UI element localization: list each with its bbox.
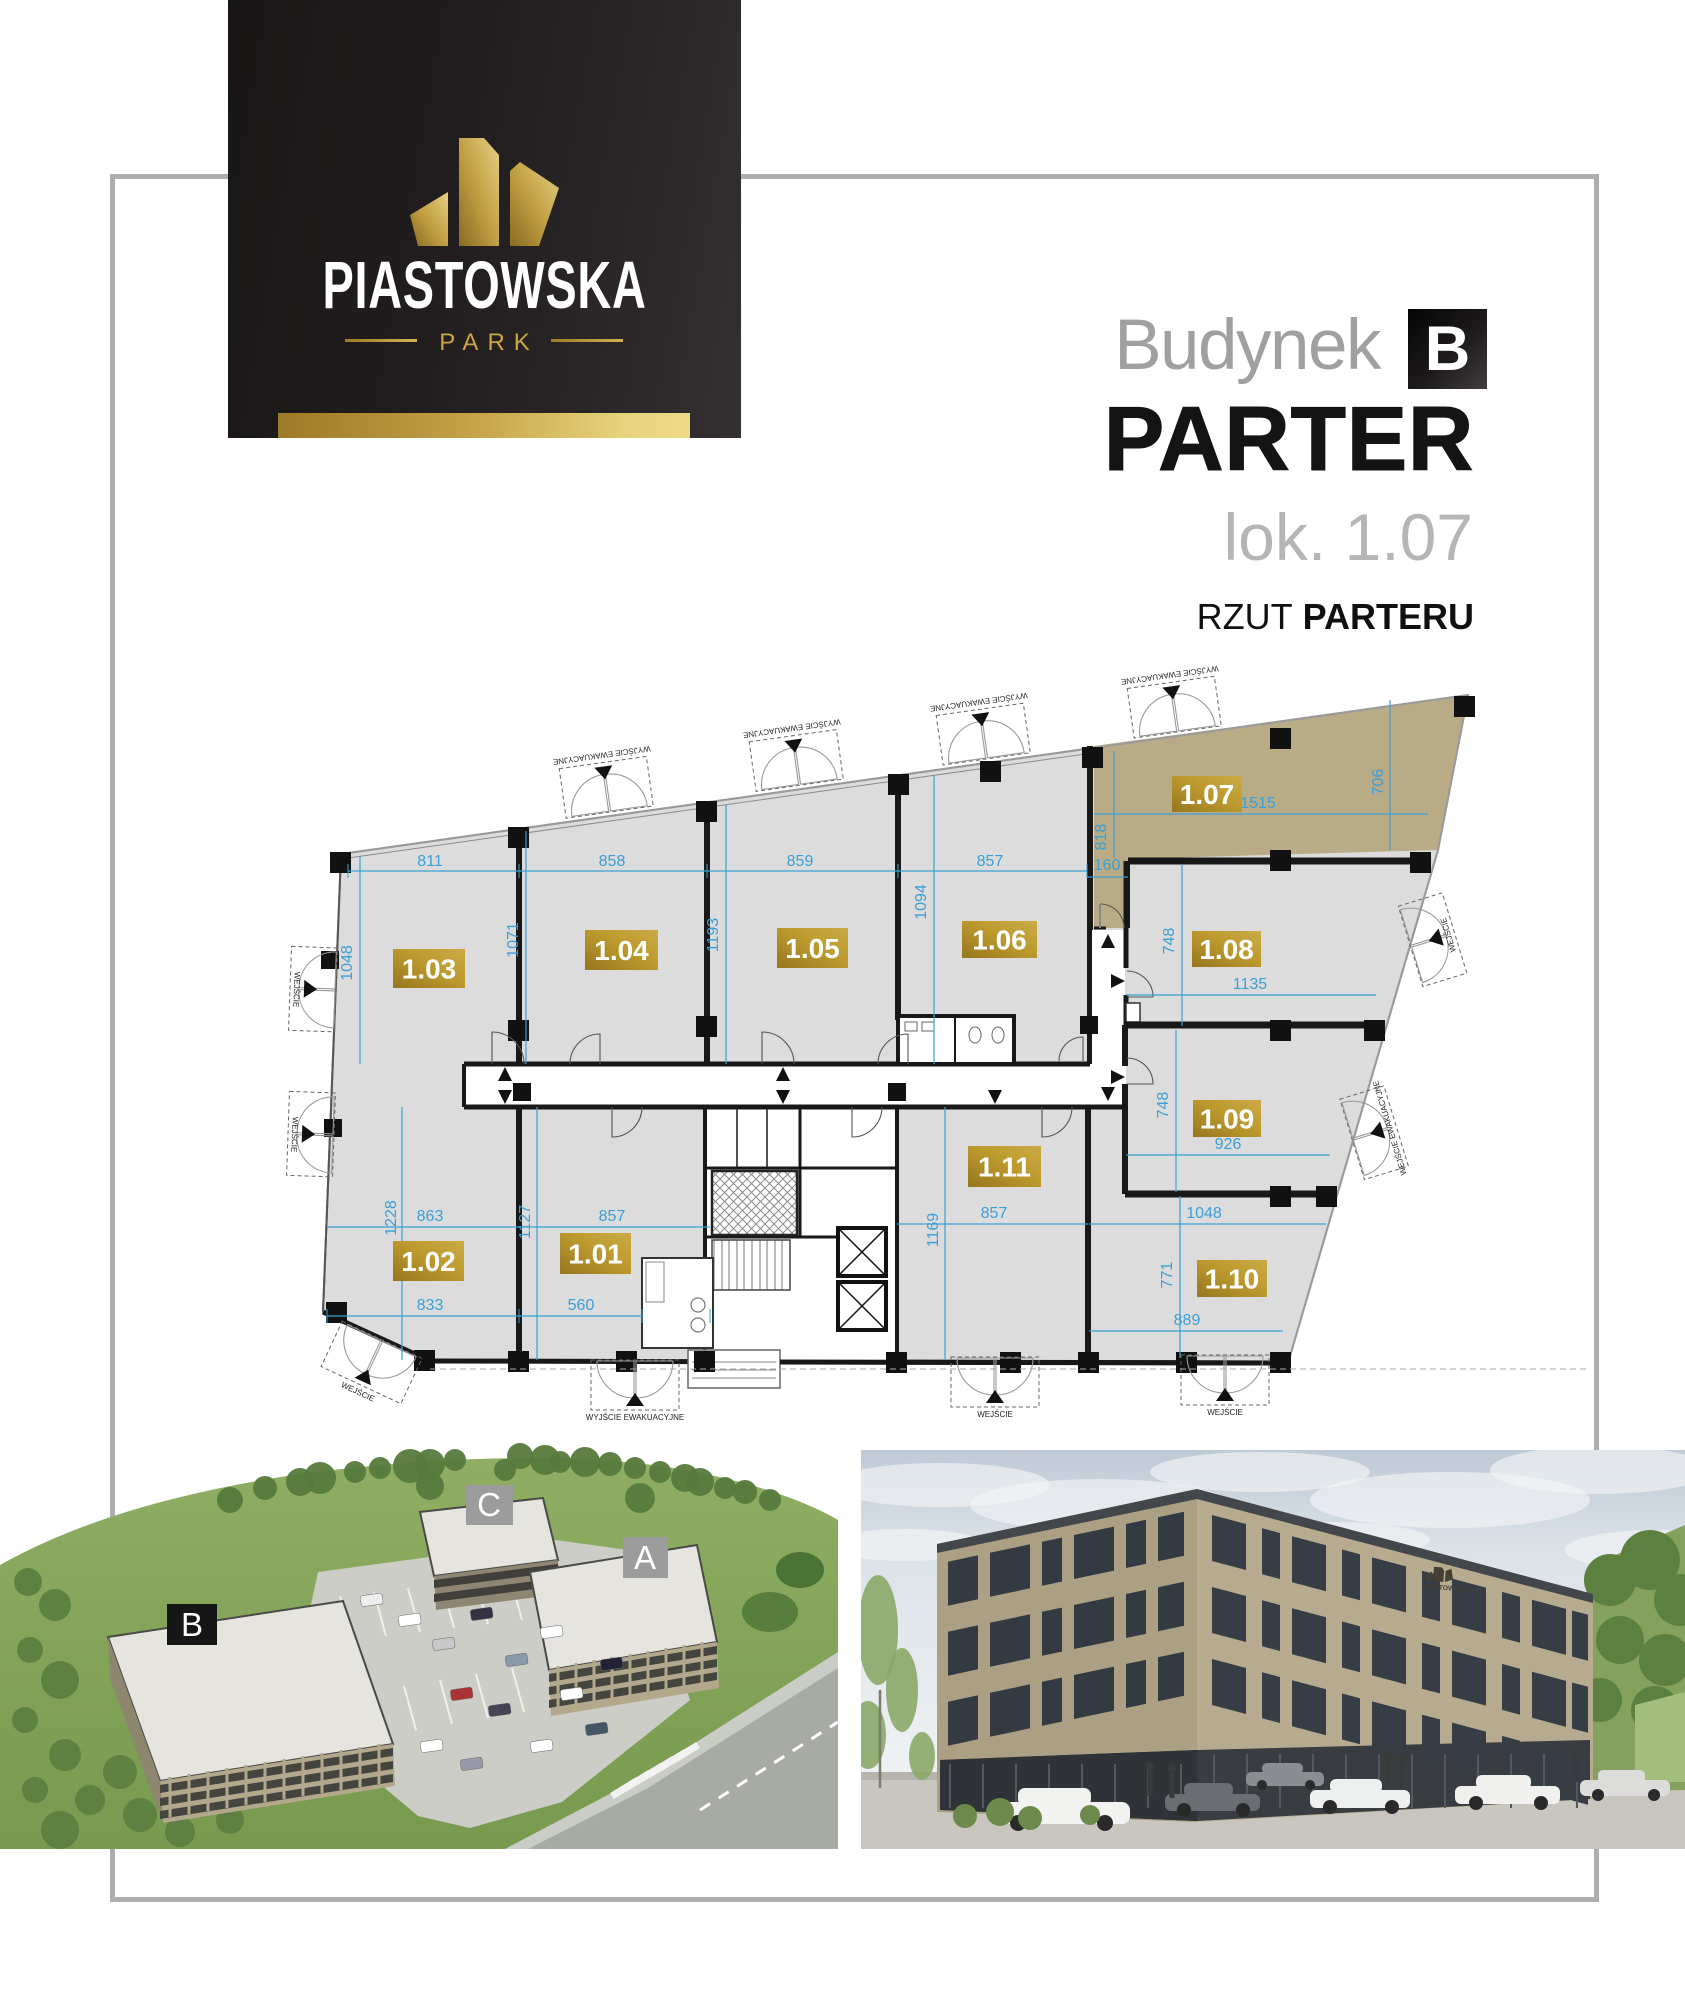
svg-text:859: 859 [787, 853, 814, 870]
svg-text:1094: 1094 [913, 884, 930, 920]
svg-text:858: 858 [599, 853, 626, 870]
svg-text:1.08: 1.08 [1199, 934, 1254, 965]
svg-text:1.07: 1.07 [1180, 779, 1235, 810]
svg-text:1.05: 1.05 [785, 933, 840, 964]
svg-text:857: 857 [599, 1208, 626, 1225]
svg-text:1071: 1071 [505, 922, 522, 958]
svg-text:748: 748 [1155, 1092, 1172, 1119]
svg-text:WEJŚCIE: WEJŚCIE [289, 1117, 299, 1153]
svg-text:857: 857 [981, 1205, 1008, 1222]
svg-text:160: 160 [1094, 857, 1121, 874]
svg-text:1.01: 1.01 [568, 1239, 623, 1270]
svg-text:1135: 1135 [1233, 976, 1268, 993]
svg-text:1169: 1169 [925, 1213, 942, 1248]
svg-text:1.02: 1.02 [401, 1246, 456, 1277]
svg-text:1.10: 1.10 [1205, 1264, 1260, 1295]
svg-text:1.03: 1.03 [402, 954, 457, 985]
svg-text:WEJŚCIE: WEJŚCIE [291, 972, 301, 1008]
svg-text:889: 889 [1174, 1312, 1201, 1329]
svg-text:WYJŚCIE EWAKUACYJNE: WYJŚCIE EWAKUACYJNE [586, 1413, 684, 1422]
svg-text:WEJŚCIE: WEJŚCIE [1439, 917, 1458, 954]
svg-text:A: A [634, 1539, 656, 1576]
svg-text:748: 748 [1161, 928, 1178, 955]
svg-text:1228: 1228 [383, 1200, 400, 1236]
svg-text:B: B [181, 1606, 203, 1643]
svg-text:1048: 1048 [339, 945, 356, 981]
svg-text:863: 863 [417, 1208, 444, 1225]
svg-text:926: 926 [1215, 1136, 1242, 1153]
svg-text:1515: 1515 [1240, 795, 1276, 812]
svg-text:771: 771 [1159, 1262, 1176, 1289]
svg-text:811: 811 [417, 853, 443, 870]
svg-text:560: 560 [568, 1297, 595, 1314]
svg-text:WEJŚCIE: WEJŚCIE [1207, 1408, 1243, 1417]
svg-text:WEJŚCIE: WEJŚCIE [977, 1410, 1013, 1419]
svg-text:1193: 1193 [705, 918, 722, 953]
svg-text:1048: 1048 [1186, 1205, 1222, 1222]
svg-text:1.09: 1.09 [1200, 1104, 1255, 1135]
svg-text:857: 857 [977, 853, 1004, 870]
svg-text:1.11: 1.11 [978, 1152, 1031, 1183]
svg-text:1127: 1127 [517, 1205, 534, 1240]
svg-text:C: C [477, 1486, 501, 1523]
svg-text:1.04: 1.04 [594, 935, 649, 966]
svg-text:833: 833 [417, 1297, 444, 1314]
svg-text:706: 706 [1370, 769, 1387, 796]
svg-text:1.06: 1.06 [972, 925, 1027, 956]
svg-text:818: 818 [1093, 824, 1110, 851]
